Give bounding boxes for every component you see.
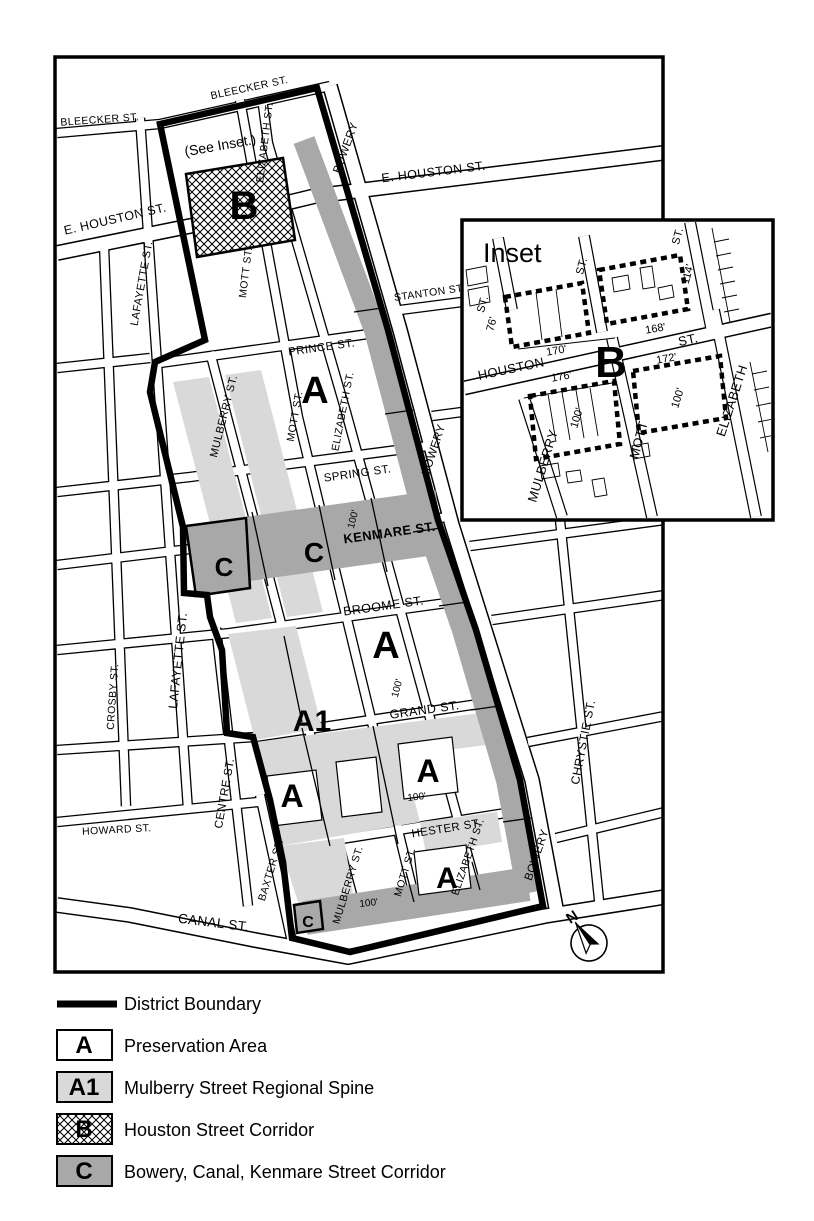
legend-row-bowery-canal-kenmare-corridor: C Bowery, Canal, Kenmare Street Corridor (57, 1156, 446, 1186)
legend-symbol-b: B (75, 1116, 92, 1143)
legend-symbol-a: A (75, 1032, 92, 1059)
street-label-mott-north: MOTT ST. (237, 247, 255, 299)
legend-label-b: Houston Street Corridor (124, 1120, 314, 1140)
area-label-a-broome: A (372, 625, 399, 667)
area-label-c-canal: C (302, 914, 314, 931)
dim-100-grand: 100' (390, 678, 405, 699)
area-label-a1: A1 (293, 705, 331, 738)
district-map-svg: BLEECKER ST. BLEECKER ST. E. HOUSTON ST.… (0, 0, 814, 1216)
inset-area-label-b: B (595, 338, 627, 387)
area-label-c-kenmare-west: C (215, 552, 234, 582)
legend-label-a: Preservation Area (124, 1036, 268, 1056)
area-label-a-west: A (280, 778, 303, 814)
legend-symbol-c: C (75, 1158, 92, 1185)
zoning-district-map-page: BLEECKER ST. BLEECKER ST. E. HOUSTON ST.… (0, 0, 814, 1216)
inset-panel: B HOUSTON ST. MULBERRY MOTT ELIZABETH ST… (462, 220, 775, 520)
dim-100-canal: 100' (359, 897, 379, 910)
dim-100-hester: 100' (407, 791, 427, 804)
area-label-a-prince: A (301, 370, 328, 412)
legend-symbol-a1: A1 (69, 1074, 100, 1101)
legend-row-mulberry-spine: A1 Mulberry Street Regional Spine (57, 1072, 374, 1102)
area-label-c-kenmare: C (304, 537, 324, 568)
area-label-b: B (230, 184, 259, 228)
street-label-howard: HOWARD ST. (82, 822, 152, 838)
legend-label-a1: Mulberry Street Regional Spine (124, 1078, 374, 1098)
legend-row-boundary: District Boundary (57, 994, 261, 1014)
legend-row-houston-corridor: B Houston Street Corridor (57, 1114, 314, 1144)
street-label-chrystie: CHRYSTIE ST. (568, 699, 598, 786)
legend-label-boundary: District Boundary (124, 994, 261, 1014)
area-label-a-grand: A (416, 753, 439, 789)
legend-row-preservation-area: A Preservation Area (57, 1030, 268, 1060)
map-legend: District Boundary A Preservation Area A1… (57, 994, 446, 1186)
area-label-a-hester: A (436, 862, 458, 895)
street-label-lafayette-south: LAFAYETTE ST. (166, 612, 190, 710)
inset-title: Inset (483, 238, 542, 268)
legend-label-c: Bowery, Canal, Kenmare Street Corridor (124, 1162, 446, 1182)
